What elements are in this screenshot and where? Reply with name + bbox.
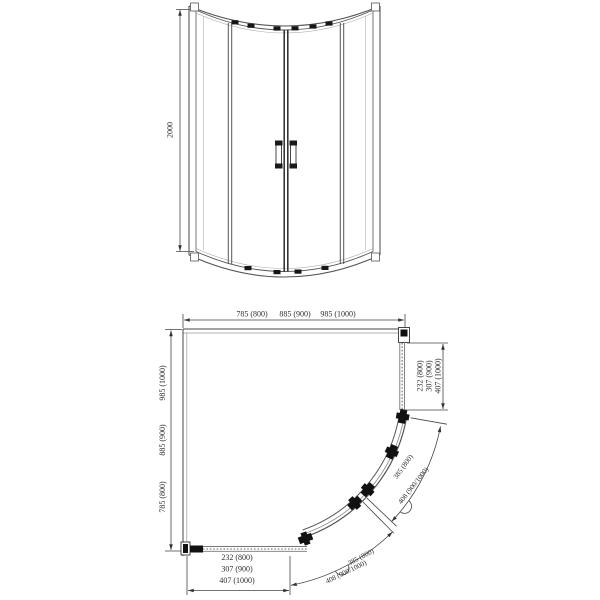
top-width-dim-800: 785 (800) bbox=[236, 310, 268, 319]
drawing-sheet: 2000 bbox=[0, 0, 600, 600]
corner-cap bbox=[372, 3, 380, 11]
top-width-dim-1000: 985 (1000) bbox=[320, 310, 356, 319]
left-depth-dimension bbox=[165, 330, 182, 552]
center-meeting-stiles bbox=[284, 30, 288, 272]
height-dimension bbox=[176, 10, 194, 252]
front-elevation-view: 2000 bbox=[166, 3, 381, 277]
sliding-door-stiles bbox=[228, 23, 343, 264]
top-rail-inner bbox=[196, 10, 373, 30]
bottom-side-dim-800: 232 (800) bbox=[221, 553, 253, 562]
right-side-dim-1000: 407 (1000) bbox=[434, 358, 443, 394]
right-door-arc-dimension bbox=[367, 418, 447, 527]
top-right-wall-profile bbox=[399, 328, 410, 343]
right-fixed-panel bbox=[400, 343, 405, 411]
door-handles bbox=[275, 141, 297, 169]
left-depth-dim-900: 885 (900) bbox=[158, 424, 167, 456]
right-side-dim-900: 307 (900) bbox=[425, 360, 434, 392]
right-door-arc-dim-800: 385 (800) bbox=[392, 453, 415, 481]
corner-cap bbox=[372, 253, 380, 261]
bottom-side-dim-1000: 407 (1000) bbox=[219, 576, 255, 585]
corner-cap bbox=[191, 3, 199, 11]
bottom-side-dim-900: 307 (900) bbox=[221, 565, 253, 574]
height-dim-label: 2000 bbox=[166, 122, 175, 138]
shower-enclosure-technical-drawing: 2000 bbox=[0, 0, 600, 600]
bottom-left-wall-profile bbox=[181, 542, 203, 555]
bottom-fixed-panel bbox=[203, 547, 307, 552]
plan-view: 785 (800) 885 (900) 985 (1000) 785 (800)… bbox=[158, 310, 448, 596]
corner-cap bbox=[191, 253, 199, 261]
bottom-door-arc-dim-900-1000: 408 (900/1000) bbox=[324, 559, 368, 586]
walls bbox=[183, 329, 409, 556]
top-rail-outer bbox=[189, 6, 380, 26]
left-depth-dim-1000: 985 (1000) bbox=[158, 365, 167, 401]
left-depth-dim-800: 785 (800) bbox=[158, 481, 167, 513]
top-width-dim-900: 885 (900) bbox=[279, 310, 311, 319]
right-side-dim-800: 232 (800) bbox=[416, 360, 425, 392]
